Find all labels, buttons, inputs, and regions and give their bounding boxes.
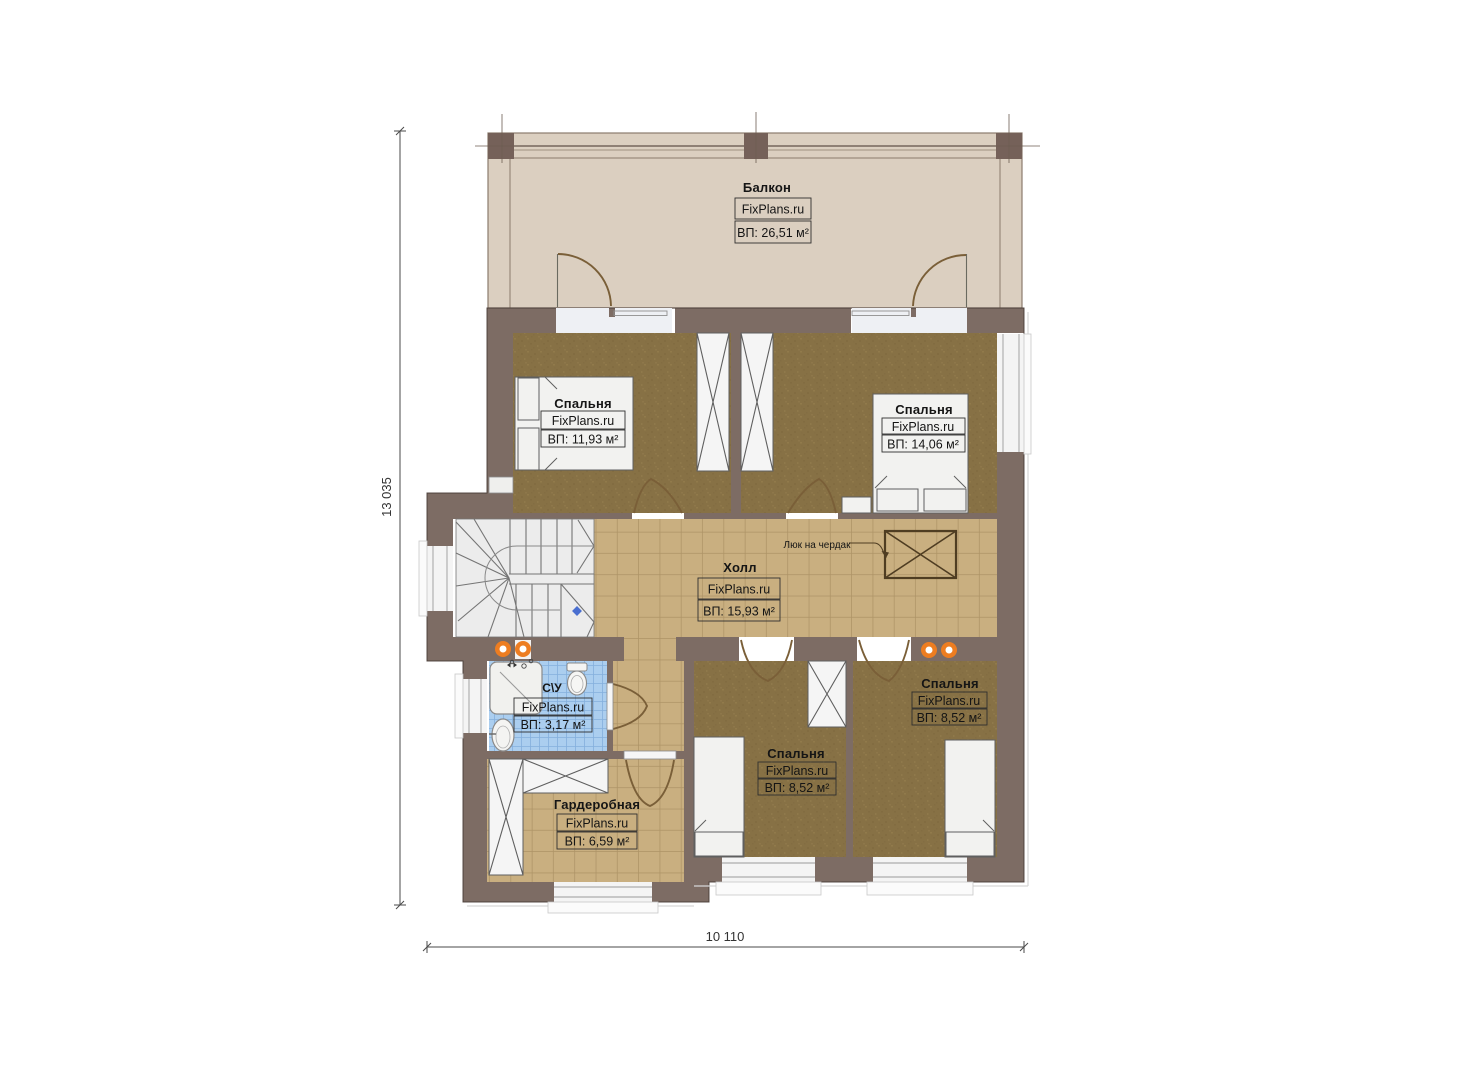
- svg-text:FixPlans.ru: FixPlans.ru: [892, 420, 955, 434]
- svg-text:Люк на чердак: Люк на чердак: [784, 540, 852, 551]
- svg-text:ВП: 11,93 м²: ВП: 11,93 м²: [548, 433, 619, 447]
- svg-text:Балкон: Балкон: [743, 180, 791, 195]
- svg-text:FixPlans.ru: FixPlans.ru: [742, 203, 805, 217]
- svg-text:FixPlans.ru: FixPlans.ru: [766, 764, 829, 778]
- svg-text:ВП: 15,93 м²: ВП: 15,93 м²: [703, 605, 775, 619]
- svg-text:С\У: С\У: [542, 681, 562, 695]
- svg-text:Спальня: Спальня: [554, 396, 612, 411]
- svg-text:Гардеробная: Гардеробная: [554, 797, 640, 812]
- svg-text:ВП: 14,06 м²: ВП: 14,06 м²: [887, 438, 959, 452]
- svg-text:FixPlans.ru: FixPlans.ru: [708, 583, 771, 597]
- svg-text:ВП: 8,52 м²: ВП: 8,52 м²: [917, 711, 982, 725]
- svg-text:ВП: 26,51 м²: ВП: 26,51 м²: [737, 226, 809, 240]
- svg-text:Спальня: Спальня: [895, 402, 953, 417]
- svg-text:ВП: 8,52 м²: ВП: 8,52 м²: [765, 781, 830, 795]
- svg-text:FixPlans.ru: FixPlans.ru: [566, 817, 629, 831]
- svg-text:FixPlans.ru: FixPlans.ru: [552, 414, 615, 428]
- svg-text:Спальня: Спальня: [921, 676, 979, 691]
- svg-text:10 110: 10 110: [706, 929, 745, 944]
- svg-text:ВП: 6,59 м²: ВП: 6,59 м²: [565, 835, 630, 849]
- svg-text:FixPlans.ru: FixPlans.ru: [918, 694, 981, 708]
- svg-text:Холл: Холл: [723, 560, 756, 575]
- svg-text:ВП: 3,17 м²: ВП: 3,17 м²: [521, 718, 586, 732]
- svg-text:Спальня: Спальня: [767, 746, 825, 761]
- svg-text:FixPlans.ru: FixPlans.ru: [522, 701, 585, 715]
- svg-text:13 035: 13 035: [379, 477, 394, 517]
